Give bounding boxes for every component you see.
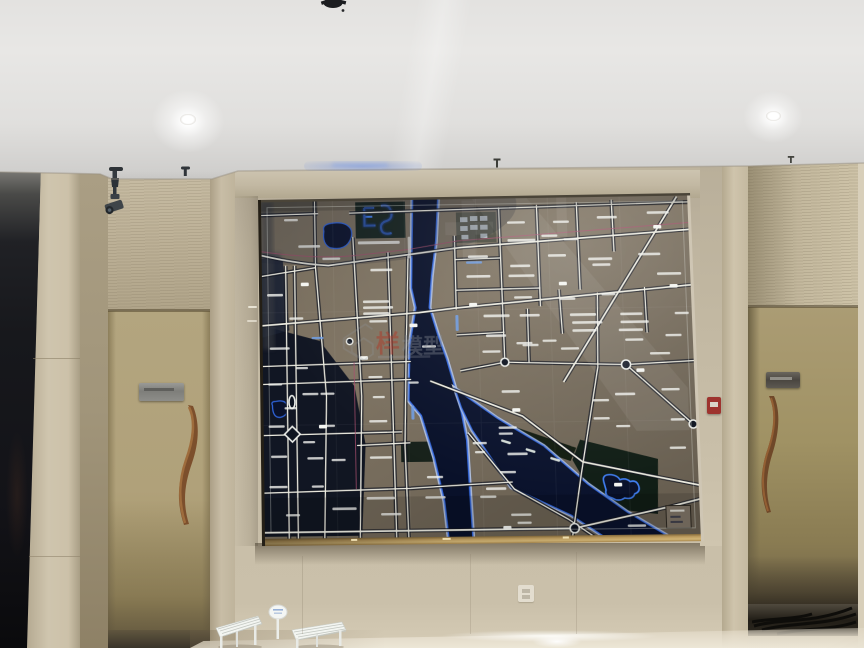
svg-text:模型: 模型 <box>402 334 445 359</box>
svg-text:样: 样 <box>375 329 400 357</box>
